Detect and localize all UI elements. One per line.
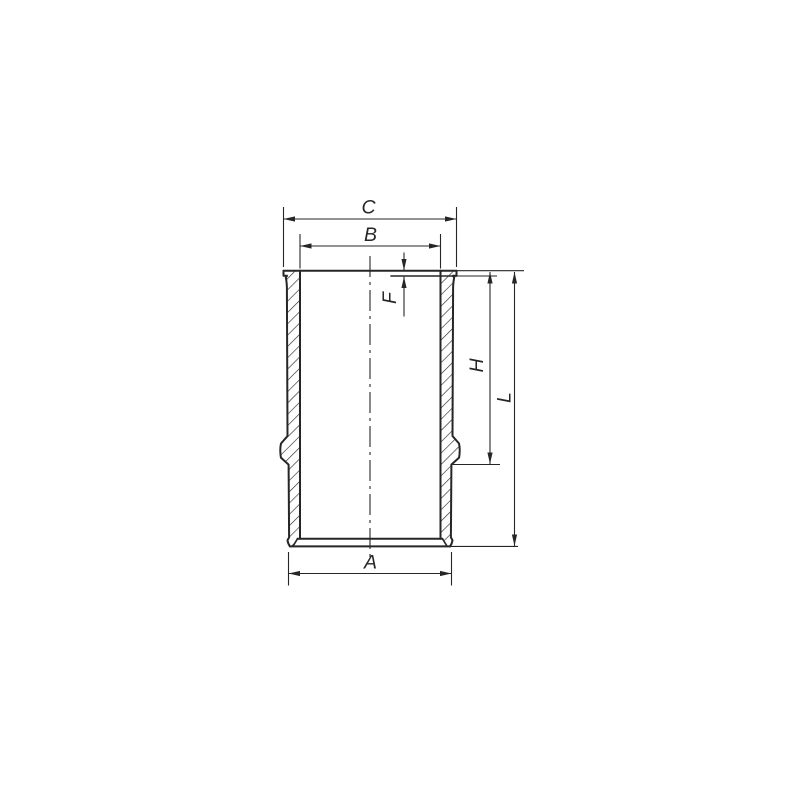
dimension-h-label: H xyxy=(466,358,488,373)
right-wall-hatch-fill xyxy=(441,271,460,547)
left-wall-hatch-fill xyxy=(280,271,300,547)
dimension-c-label: C xyxy=(361,197,376,219)
dimension-a: A xyxy=(289,552,452,586)
reference-lines xyxy=(450,271,524,547)
dimension-l-label: L xyxy=(494,392,516,403)
cylinder-liner-technical-drawing: C B F H L A xyxy=(0,0,800,800)
dimension-f: F xyxy=(379,253,404,317)
dimension-b-label: B xyxy=(364,224,377,246)
dimension-h: H xyxy=(466,272,490,464)
dimension-f-label: F xyxy=(379,291,401,304)
dimension-a-label: A xyxy=(363,552,377,574)
dimension-l: L xyxy=(494,272,516,546)
